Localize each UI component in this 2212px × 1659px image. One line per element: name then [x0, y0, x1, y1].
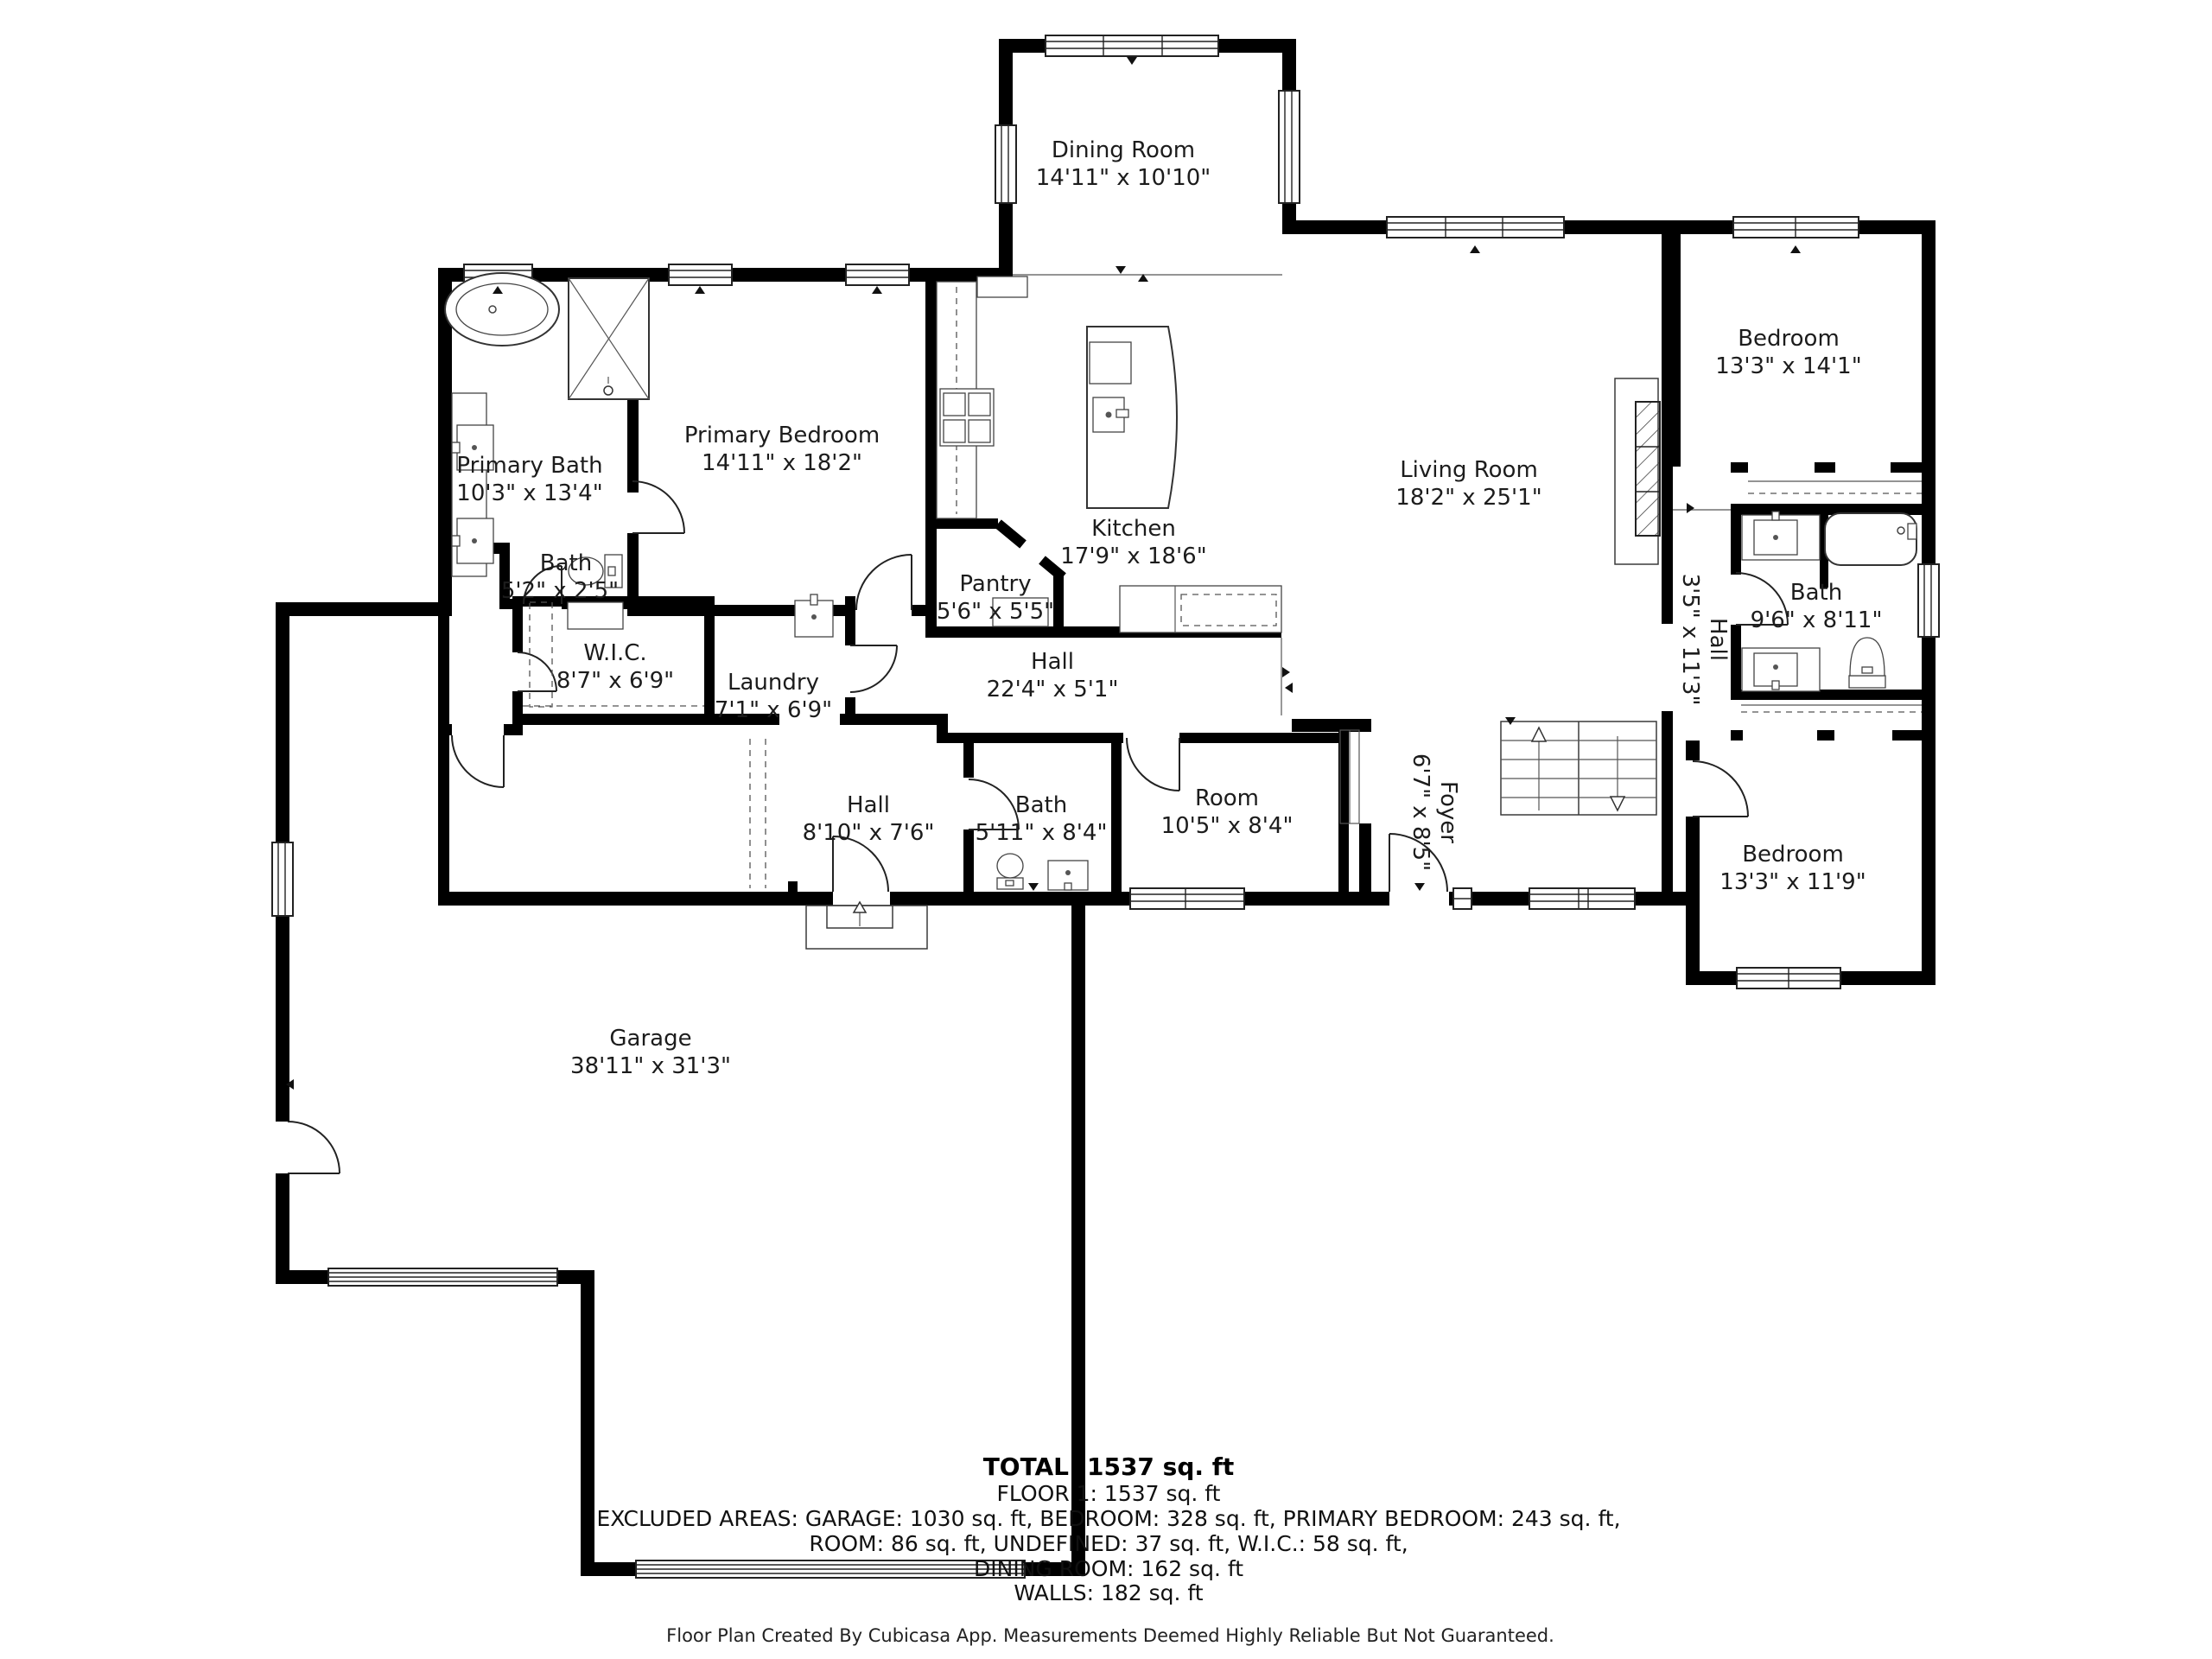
window-icon — [1529, 888, 1635, 909]
svg-text:38'11" x 31'3": 38'11" x 31'3" — [570, 1053, 731, 1079]
svg-text:Bath: Bath — [1790, 580, 1842, 606]
window-icon — [1918, 564, 1939, 637]
svg-text:5'2" x 2'5": 5'2" x 2'5" — [501, 578, 619, 604]
svg-text:Living Room: Living Room — [1400, 457, 1538, 483]
summary-floor: FLOOR 1: 1537 sq. ft — [997, 1481, 1221, 1506]
svg-text:Hall: Hall — [1031, 649, 1074, 675]
svg-text:10'5" x 8'4": 10'5" x 8'4" — [1161, 813, 1294, 839]
svg-text:7'1" x 6'9": 7'1" x 6'9" — [715, 697, 832, 723]
svg-text:Kitchen: Kitchen — [1091, 516, 1176, 542]
svg-text:3'5" x 11'3": 3'5" x 11'3" — [1677, 574, 1703, 706]
svg-text:6'7" x 8'5": 6'7" x 8'5" — [1408, 753, 1433, 871]
bathtub-icon — [1825, 513, 1916, 565]
svg-text:8'10" x 7'6": 8'10" x 7'6" — [803, 820, 935, 846]
window-icon — [1387, 217, 1564, 238]
floor-plan-page: Dining Room 14'11" x 10'10" Primary Bath… — [0, 0, 2212, 1659]
svg-text:14'11" x 18'2": 14'11" x 18'2" — [702, 450, 862, 476]
svg-text:13'3" x 14'1": 13'3" x 14'1" — [1715, 353, 1861, 379]
svg-text:Foyer: Foyer — [1435, 781, 1461, 843]
summary-excluded-1: EXCLUDED AREAS: GARAGE: 1030 sq. ft, BED… — [596, 1506, 1620, 1531]
garage-door-icon — [636, 1560, 1025, 1578]
window-icon — [995, 125, 1016, 203]
svg-text:14'11" x 10'10": 14'11" x 10'10" — [1036, 165, 1211, 191]
window-icon — [1130, 888, 1244, 909]
svg-text:17'9" x 18'6": 17'9" x 18'6" — [1060, 543, 1206, 569]
laundry-fixtures — [795, 594, 833, 637]
svg-text:Hall: Hall — [847, 792, 890, 818]
svg-text:Dining Room: Dining Room — [1052, 137, 1195, 163]
summary-excluded-3: DINING ROOM: 162 sq. ft — [974, 1556, 1243, 1581]
svg-text:Garage: Garage — [609, 1026, 691, 1052]
summary-total: TOTAL: 1537 sq. ft — [983, 1452, 1235, 1481]
floor-plan-canvas: Dining Room 14'11" x 10'10" Primary Bath… — [0, 0, 2212, 1659]
svg-text:10'3" x 13'4": 10'3" x 13'4" — [456, 480, 602, 506]
svg-text:Bath: Bath — [1015, 792, 1067, 818]
window-icon — [669, 264, 732, 285]
window-icon — [272, 842, 293, 916]
kitchen-south-counter — [1120, 586, 1281, 632]
footer-disclaimer: Floor Plan Created By Cubicasa App. Meas… — [666, 1625, 1554, 1646]
summary-walls: WALLS: 182 sq. ft — [1014, 1580, 1203, 1605]
svg-text:Bedroom: Bedroom — [1738, 326, 1840, 352]
window-icon — [1733, 217, 1859, 238]
svg-text:Bath: Bath — [540, 550, 592, 576]
svg-text:5'6" x 5'5": 5'6" x 5'5" — [937, 599, 1054, 625]
svg-text:Bedroom: Bedroom — [1742, 842, 1844, 868]
svg-text:Primary Bath: Primary Bath — [456, 453, 602, 479]
svg-text:Primary Bedroom: Primary Bedroom — [684, 423, 880, 448]
fridge-icon — [977, 276, 1027, 297]
svg-text:Laundry: Laundry — [728, 670, 819, 696]
svg-text:Room: Room — [1195, 785, 1259, 811]
closet-shelf — [568, 602, 623, 629]
garage-door-icon — [328, 1268, 557, 1286]
window-icon — [1453, 888, 1471, 909]
window-icon — [1279, 91, 1300, 203]
svg-text:8'7" x 6'9": 8'7" x 6'9" — [556, 668, 674, 694]
svg-text:W.I.C.: W.I.C. — [583, 640, 646, 666]
svg-text:Pantry: Pantry — [959, 571, 1031, 597]
svg-text:9'6" x 8'11": 9'6" x 8'11" — [1751, 607, 1883, 633]
svg-text:5'11" x 8'4": 5'11" x 8'4" — [976, 820, 1108, 846]
summary-excluded-2: ROOM: 86 sq. ft, UNDEFINED: 37 sq. ft, W… — [809, 1531, 1408, 1556]
window-icon — [846, 264, 909, 285]
svg-text:18'2" x 25'1": 18'2" x 25'1" — [1395, 485, 1541, 511]
svg-text:13'3" x 11'9": 13'3" x 11'9" — [1719, 869, 1866, 895]
svg-text:22'4" x 5'1": 22'4" x 5'1" — [987, 677, 1119, 702]
window-icon — [1046, 35, 1218, 56]
toilet-icon — [997, 854, 1023, 889]
svg-text:Hall: Hall — [1705, 618, 1731, 661]
window-icon — [1737, 968, 1840, 988]
